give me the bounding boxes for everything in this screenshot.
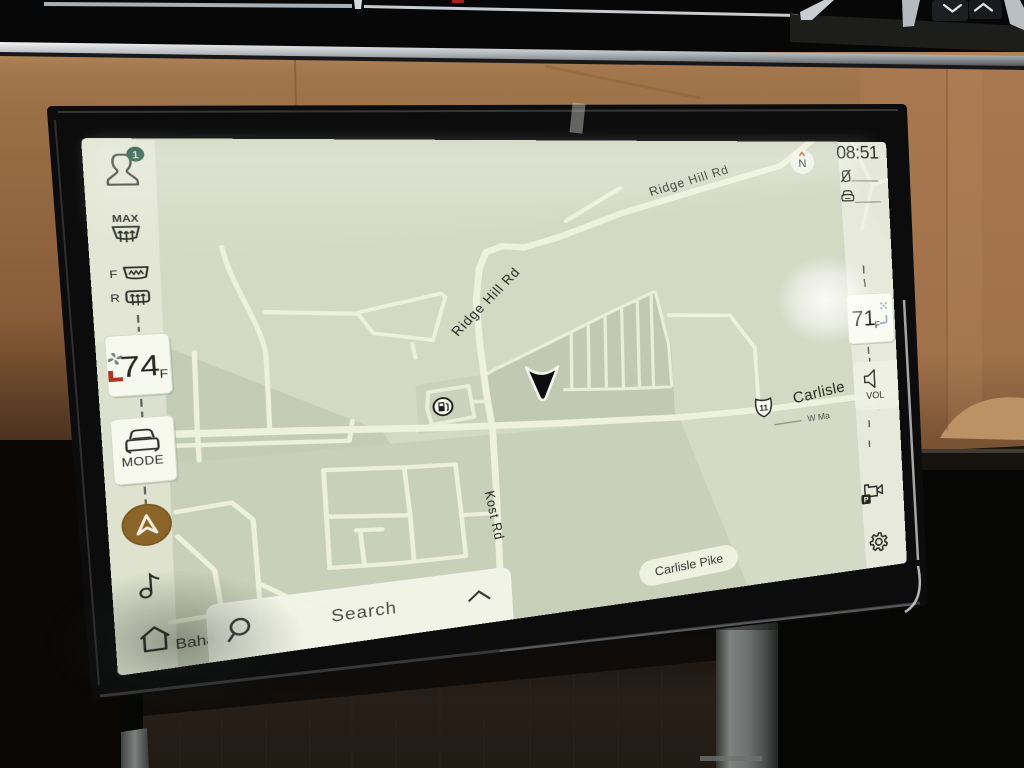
svg-text:11: 11 xyxy=(759,404,768,413)
svg-text:F: F xyxy=(159,367,168,380)
svg-text:74: 74 xyxy=(119,349,161,384)
svg-text:1: 1 xyxy=(131,149,139,161)
svg-text:VOL: VOL xyxy=(866,389,885,401)
svg-text:F: F xyxy=(109,268,118,280)
svg-text:MAX: MAX xyxy=(112,214,140,225)
svg-text:N: N xyxy=(798,158,807,170)
svg-text:08:51: 08:51 xyxy=(836,142,879,163)
svg-text:P: P xyxy=(864,496,869,505)
svg-text:R: R xyxy=(110,292,120,305)
svg-text:F: F xyxy=(875,320,881,331)
svg-text:71: 71 xyxy=(851,305,876,331)
